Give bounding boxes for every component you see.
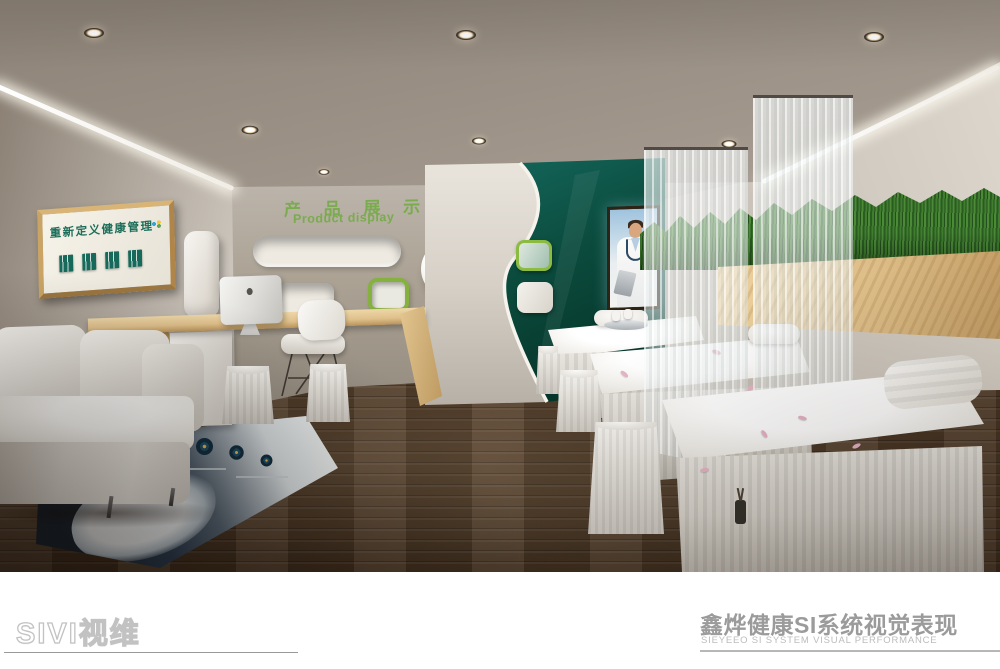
downlight xyxy=(319,169,330,175)
product-display-title-en: Product display xyxy=(293,210,394,226)
sivi-logo: SIVI视维 xyxy=(16,610,141,652)
cosmetic-jar xyxy=(624,309,632,319)
downlight xyxy=(242,126,259,135)
fabric-stool xyxy=(306,364,350,422)
project-subtitle: SIEYEEO SI SYSTEM VISUAL PERFORMANCE xyxy=(701,635,937,646)
sign-logo-mark xyxy=(150,219,164,229)
wall-sign-frame: 重新定义健康管理 xyxy=(37,200,176,299)
downlight xyxy=(722,140,737,148)
fabric-stool xyxy=(588,422,664,534)
pill-wall-niche xyxy=(253,236,401,267)
monitor-logo-dot xyxy=(247,288,253,295)
downlight xyxy=(864,32,884,42)
downlight xyxy=(84,28,104,38)
green-square-shelf xyxy=(368,278,409,312)
rug-text-line xyxy=(236,476,288,478)
footer-left-rule xyxy=(4,652,298,653)
footer-right-rule xyxy=(700,650,1000,652)
downlight xyxy=(472,138,486,145)
footer: SIVI视维 鑫烨健康SI系统视觉表现 SIEYEEO SI SYSTEM VI… xyxy=(0,572,1000,669)
rug-chart-icon xyxy=(261,455,273,467)
rug-text-line xyxy=(186,468,226,470)
rug-chart-icon xyxy=(229,445,243,459)
sign-badge-icon xyxy=(128,249,142,267)
amenity-tray xyxy=(604,320,648,330)
fabric-stool xyxy=(536,346,560,394)
sign-badges xyxy=(59,249,142,272)
downlight xyxy=(456,30,476,40)
desktop-monitor xyxy=(219,275,283,325)
sign-badge-icon xyxy=(105,251,119,269)
white-square-shelf-teal xyxy=(517,282,553,313)
vertical-wall-shelf xyxy=(184,231,219,318)
green-square-shelf-teal xyxy=(516,240,552,271)
office-chair xyxy=(297,299,346,341)
sign-badge-icon xyxy=(59,254,73,272)
rug-chart-icon xyxy=(196,438,213,455)
fabric-stool xyxy=(222,366,274,424)
reed-diffuser xyxy=(735,500,746,524)
massage-bed-skirt xyxy=(676,446,984,572)
interior-rendering: 重新定义健康管理 产 品 展 示 Product display xyxy=(0,0,1000,669)
fabric-stool xyxy=(556,370,602,432)
sheer-curtain xyxy=(753,95,853,425)
cosmetic-jar xyxy=(612,311,620,321)
sign-badge-icon xyxy=(82,253,96,271)
sofa-base xyxy=(0,442,190,504)
